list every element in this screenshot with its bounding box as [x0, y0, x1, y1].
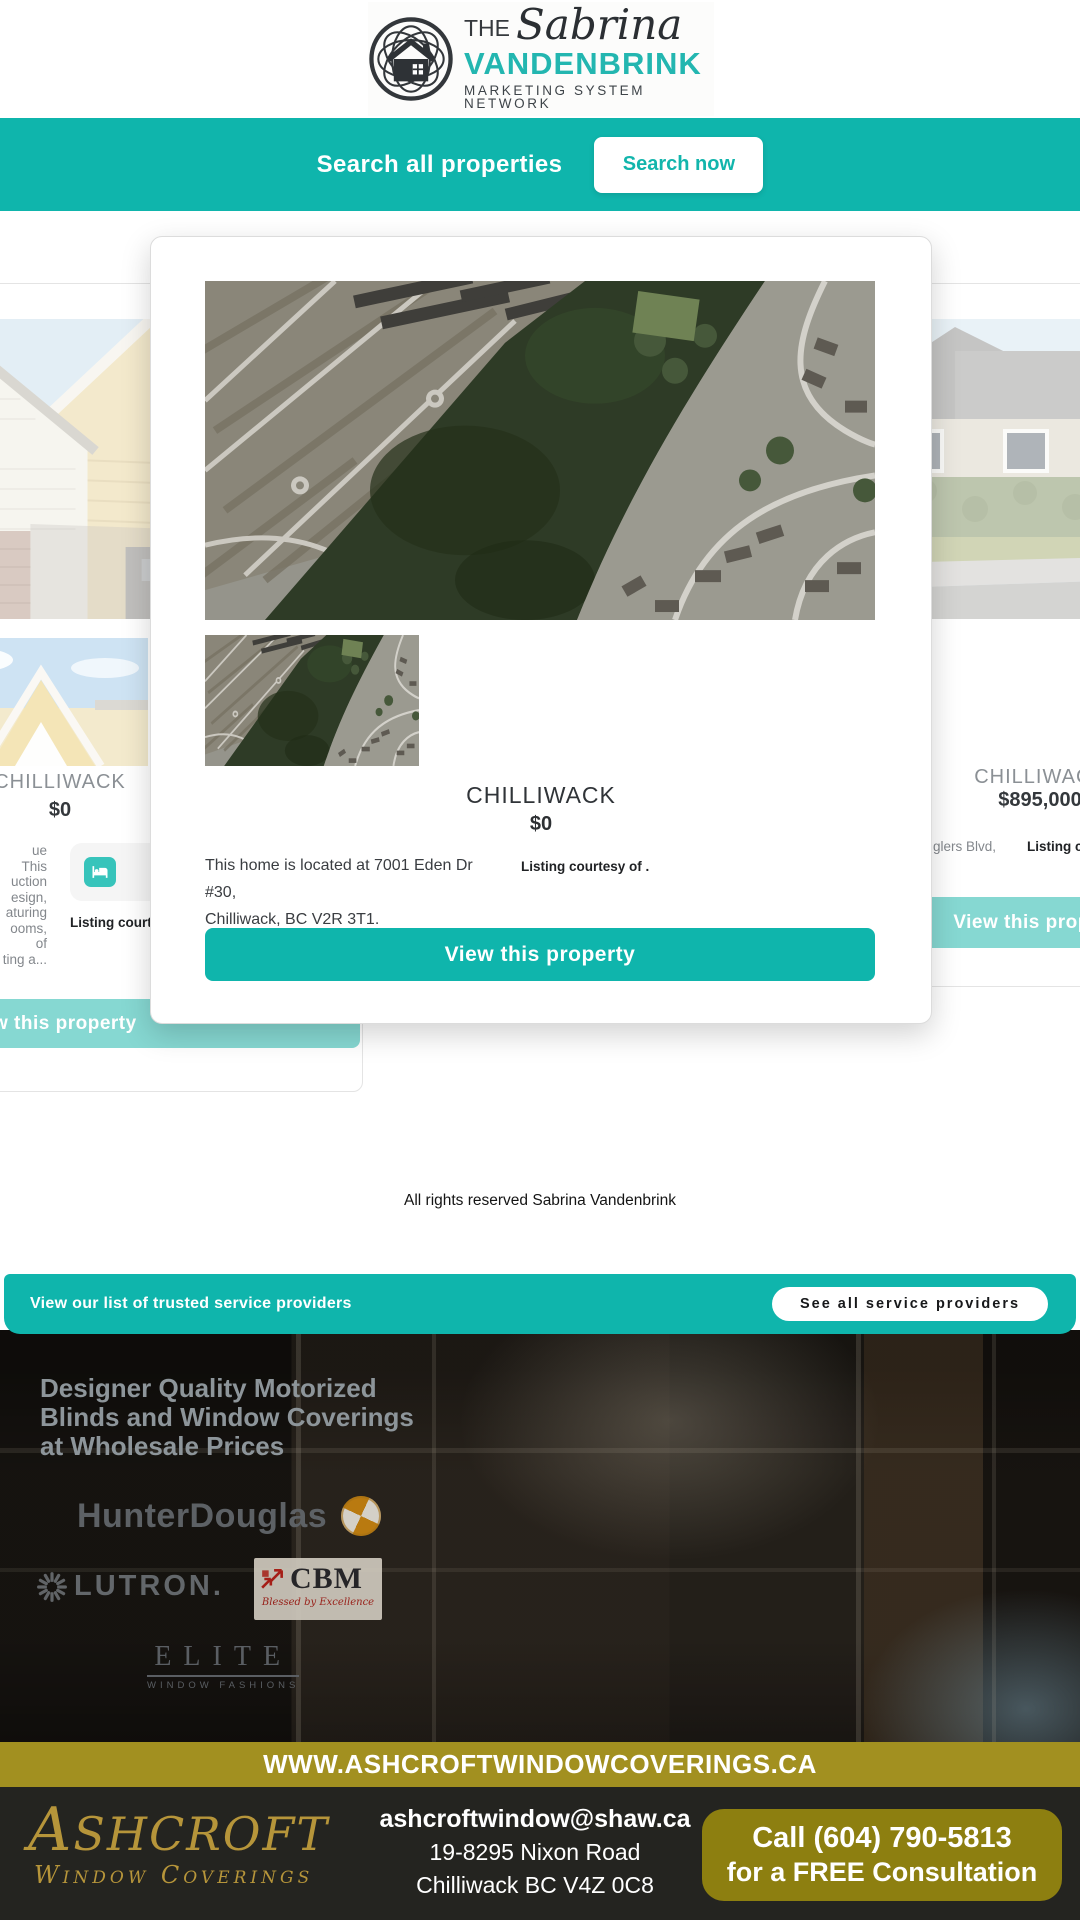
modal-price: $0 — [151, 813, 931, 836]
lutron-sunburst-icon — [36, 1571, 68, 1603]
property-modal: CHILLIWACK $0 This home is located at 70… — [150, 236, 932, 1024]
modal-view-property-button[interactable]: View this property — [205, 928, 875, 981]
hunter-douglas-logo: HunterDouglas — [77, 1496, 381, 1536]
ashcroft-logo-sub: Window Coverings — [34, 1861, 329, 1889]
cbm-logo: CBM Blessed by Excellence — [254, 1558, 382, 1620]
left-card-description: ue This uction esign, aturing ooms, of t… — [0, 843, 47, 967]
right-card-listing-courtesy: Listing courtesy of . — [1027, 839, 1080, 854]
search-banner-label: Search all properties — [317, 151, 563, 179]
rights-notice: All rights reserved Sabrina Vandenbrink — [0, 1192, 1080, 1210]
lutron-logo: LUTRON. — [36, 1570, 224, 1603]
footer-contact-block: ashcroftwindow@shaw.ca 19-8295 Nixon Roa… — [360, 1803, 710, 1902]
footer-email[interactable]: ashcroftwindow@shaw.ca — [360, 1803, 710, 1836]
cbm-arrows-icon — [260, 1566, 286, 1592]
header: THE Sabrina VANDENBRINK MARKETING SYSTEM… — [0, 0, 1080, 118]
bed-icon — [84, 857, 116, 887]
ad-headline: Designer Quality Motorized Blinds and Wi… — [40, 1374, 414, 1461]
site-logo[interactable]: THE Sabrina VANDENBRINK MARKETING SYSTEM… — [368, 2, 714, 116]
page: CHILLIWACK $0 ue This uction esign, atur… — [0, 0, 1080, 1920]
left-card-thumbnail[interactable] — [0, 638, 148, 766]
logo-text: THE Sabrina VANDENBRINK MARKETING SYSTEM… — [464, 8, 714, 111]
modal-satellite-thumbnail[interactable] — [205, 635, 419, 766]
call-consultation-button[interactable]: Call (604) 790-5813 for a FREE Consultat… — [702, 1809, 1062, 1901]
logo-tagline: MARKETING SYSTEM NETWORK — [464, 84, 714, 111]
modal-description: This home is located at 7001 Eden Dr #30… — [205, 852, 505, 933]
ashcroft-website-url: WWW.ASHCROFTWINDOWCOVERINGS.CA — [263, 1749, 817, 1780]
ashcroft-footer: ASHCROFT Window Coverings ashcroftwindow… — [0, 1787, 1080, 1920]
ashcroft-logo: ASHCROFT Window Coverings — [28, 1797, 329, 1889]
right-card-description: glers Blvd, — [933, 839, 996, 855]
search-now-button[interactable]: Search now — [594, 137, 763, 193]
modal-city: CHILLIWACK — [151, 782, 931, 809]
logo-knot-house-icon — [368, 16, 454, 102]
modal-listing-courtesy: Listing courtesy of . — [521, 859, 649, 874]
footer-address-line2: Chilliwack BC V4Z 0C8 — [360, 1869, 710, 1902]
modal-satellite-image[interactable] — [205, 281, 875, 620]
search-banner: Search all properties Search now — [0, 118, 1080, 211]
hunter-douglas-pinwheel-icon — [341, 1496, 381, 1536]
providers-label: View our list of trusted service provide… — [30, 1295, 352, 1313]
logo-the: THE — [464, 17, 510, 46]
elite-logo: ELITE WINDOW FASHIONS — [147, 1641, 299, 1691]
see-all-providers-button[interactable]: See all service providers — [772, 1287, 1048, 1321]
ashcroft-ad-banner[interactable]: Designer Quality Motorized Blinds and Wi… — [0, 1330, 1080, 1742]
service-providers-bar: View our list of trusted service provide… — [4, 1274, 1076, 1334]
ashcroft-website-bar[interactable]: WWW.ASHCROFTWINDOWCOVERINGS.CA — [0, 1742, 1080, 1787]
footer-address-line1: 19-8295 Nixon Road — [360, 1836, 710, 1869]
photo-wash-overlay — [0, 638, 148, 766]
cbm-tagline: Blessed by Excellence — [260, 1597, 376, 1608]
logo-surname: VANDENBRINK — [464, 48, 714, 79]
logo-name: Sabrina — [516, 4, 682, 46]
